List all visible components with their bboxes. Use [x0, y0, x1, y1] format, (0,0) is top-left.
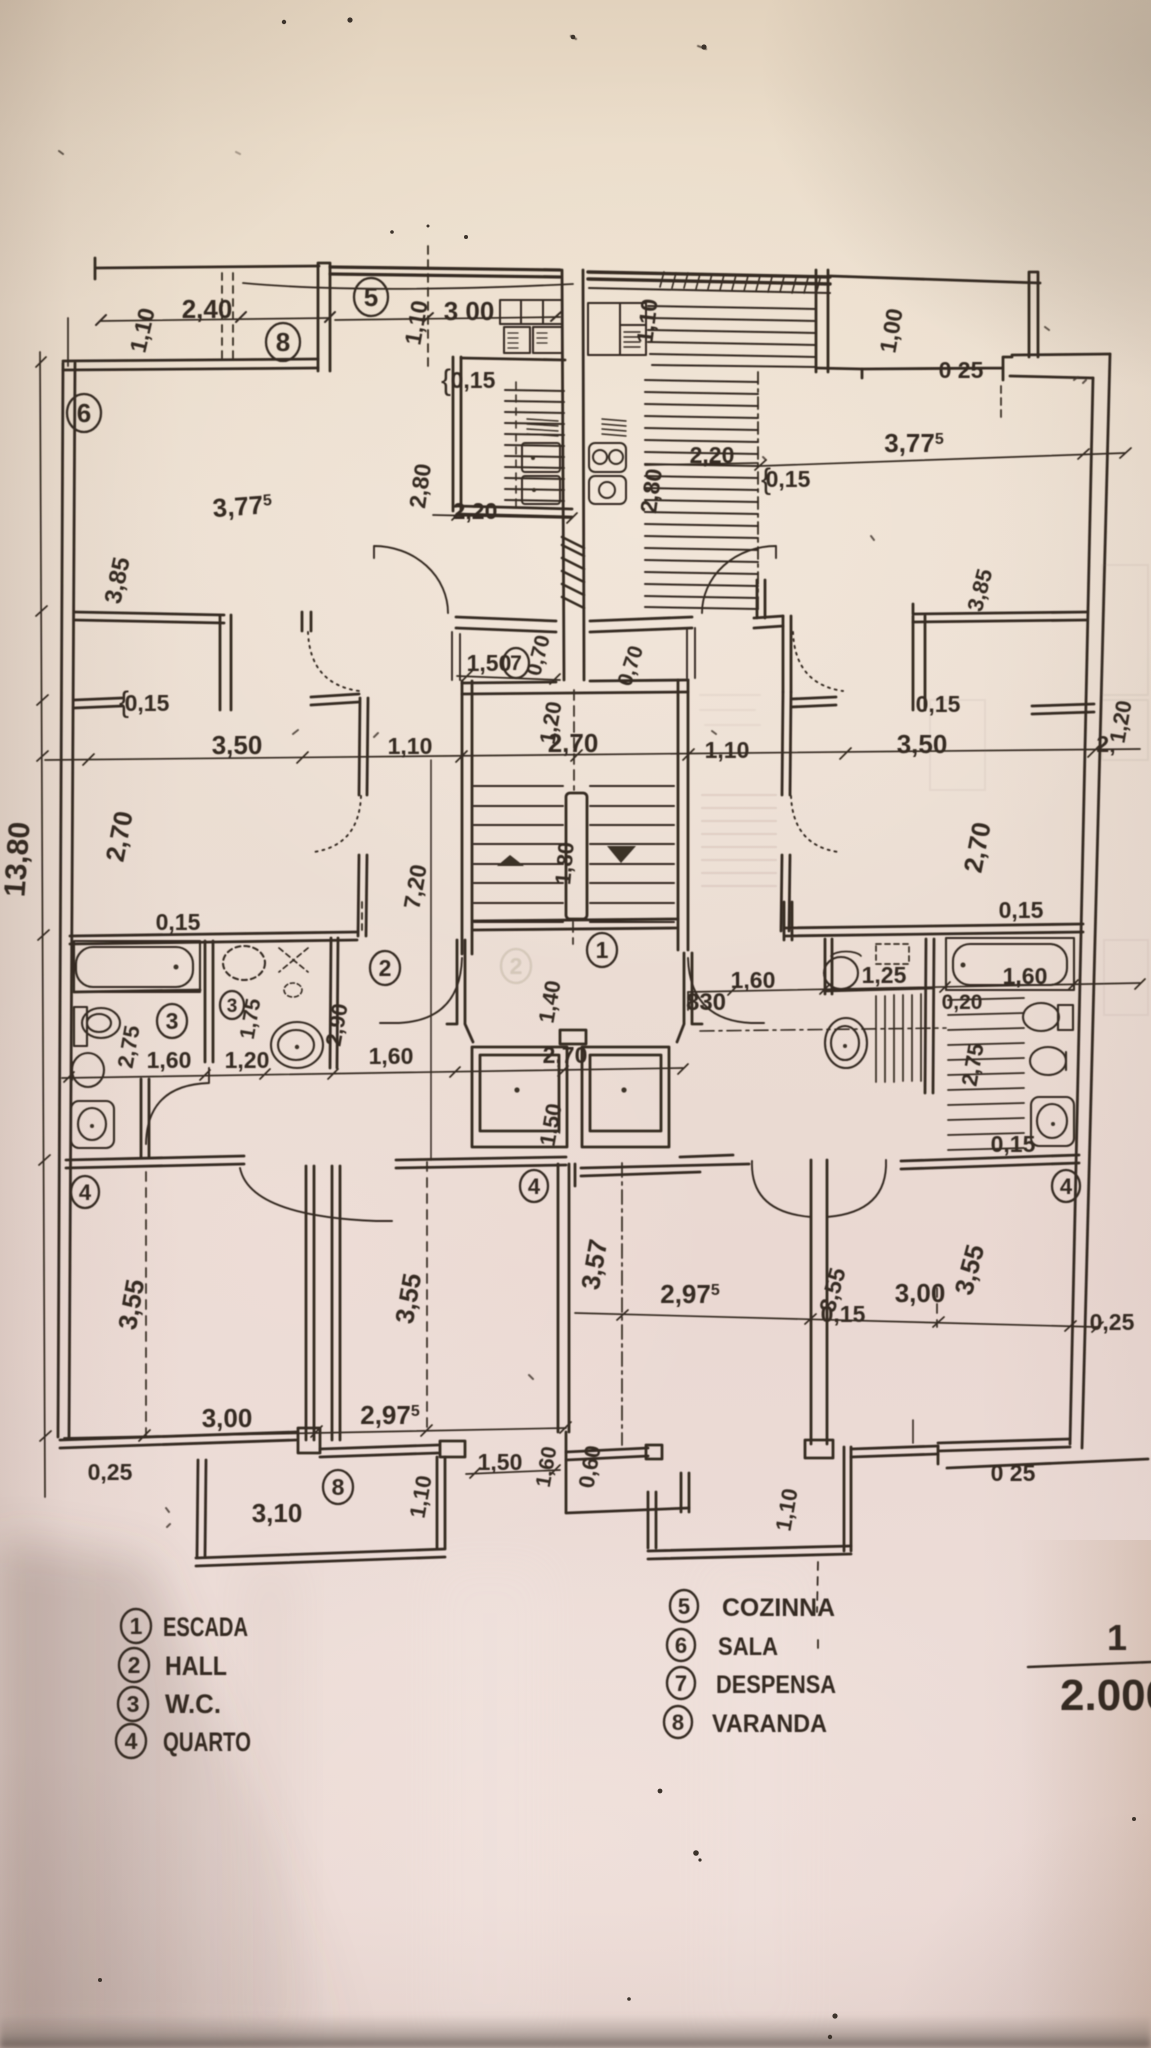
- svg-text:0 25: 0 25: [939, 357, 984, 383]
- svg-text:1,10: 1,10: [705, 737, 750, 763]
- svg-text:2,70: 2,70: [543, 1042, 588, 1068]
- svg-text:13,80: 13,80: [0, 821, 37, 898]
- svg-text:2.000: 2.000: [1060, 1671, 1151, 1720]
- svg-text:8: 8: [672, 1710, 684, 1735]
- svg-text:0,25: 0,25: [88, 1459, 133, 1485]
- svg-text:1,10: 1,10: [631, 297, 662, 345]
- svg-text:{: {: [119, 686, 129, 719]
- svg-text:1,20: 1,20: [225, 1047, 270, 1073]
- svg-text:2: 2: [379, 955, 392, 981]
- svg-text:830: 830: [686, 989, 726, 1016]
- svg-text:2: 2: [510, 953, 523, 979]
- svg-text:4: 4: [79, 1180, 92, 1205]
- svg-text:4: 4: [528, 1174, 541, 1199]
- svg-text:3,775: 3,775: [212, 489, 274, 523]
- svg-text:3: 3: [127, 1691, 140, 1717]
- svg-text:7: 7: [675, 1671, 687, 1696]
- svg-text:{: {: [441, 364, 451, 397]
- svg-text:2,40: 2,40: [182, 294, 233, 324]
- svg-text:2,20: 2,20: [690, 442, 735, 468]
- svg-text:8: 8: [276, 327, 290, 357]
- svg-text:DESPENSA: DESPENSA: [716, 1671, 836, 1699]
- svg-text:ESCADA: ESCADA: [163, 1612, 248, 1642]
- svg-text:0,25: 0,25: [1090, 1309, 1135, 1335]
- svg-text:7: 7: [510, 652, 522, 675]
- svg-text:3,00: 3,00: [202, 1403, 253, 1433]
- svg-text:{: {: [761, 463, 771, 496]
- svg-text:3,50: 3,50: [212, 730, 263, 760]
- svg-text:0,15: 0,15: [766, 466, 811, 492]
- svg-text:3,10: 3,10: [252, 1498, 303, 1528]
- svg-text:1: 1: [1107, 1617, 1127, 1658]
- svg-text:1,80: 1,80: [550, 841, 579, 886]
- svg-text:1,10: 1,10: [388, 733, 433, 759]
- svg-text:1,60: 1,60: [731, 967, 776, 993]
- svg-text:0 25: 0 25: [991, 1460, 1036, 1486]
- svg-text:HALL: HALL: [165, 1651, 227, 1681]
- svg-text:6: 6: [77, 398, 91, 428]
- svg-text:2,20: 2,20: [453, 498, 498, 524]
- svg-text:W.C.: W.C.: [165, 1689, 221, 1719]
- svg-text:COZINNA: COZINNA: [722, 1594, 835, 1622]
- svg-text:3: 3: [227, 996, 238, 1017]
- svg-text:3,00: 3,00: [895, 1278, 946, 1308]
- svg-text:VARANDA: VARANDA: [712, 1710, 827, 1738]
- svg-text:0,15: 0,15: [916, 691, 961, 717]
- svg-text:3 00: 3 00: [444, 296, 495, 326]
- svg-text:1,60: 1,60: [369, 1043, 414, 1069]
- svg-text:0,15: 0,15: [125, 690, 170, 716]
- svg-text:2,: 2,: [1096, 731, 1115, 757]
- svg-text:3: 3: [166, 1008, 179, 1034]
- svg-text:3,50: 3,50: [897, 729, 948, 759]
- svg-text:4: 4: [1060, 1174, 1073, 1199]
- svg-text:1,60: 1,60: [1003, 963, 1048, 989]
- svg-text:SALA: SALA: [718, 1633, 778, 1661]
- svg-text:6: 6: [675, 1633, 687, 1658]
- svg-text:0,15: 0,15: [999, 897, 1044, 923]
- svg-text:2: 2: [128, 1652, 141, 1678]
- svg-text:QUARTO: QUARTO: [163, 1727, 251, 1757]
- svg-text:5: 5: [364, 282, 378, 312]
- svg-text:0,20: 0,20: [942, 991, 983, 1014]
- svg-text:0,15: 0,15: [156, 909, 201, 935]
- svg-text:0,15: 0,15: [451, 367, 496, 393]
- svg-text:1,60: 1,60: [147, 1047, 192, 1073]
- svg-text:8: 8: [332, 1474, 345, 1500]
- svg-text:1,50: 1,50: [478, 1449, 523, 1475]
- svg-text:1: 1: [130, 1613, 143, 1639]
- svg-text:0,15: 0,15: [991, 1131, 1036, 1157]
- svg-text:4: 4: [125, 1728, 138, 1754]
- svg-text:1,25: 1,25: [862, 962, 907, 988]
- svg-text:5: 5: [678, 1594, 690, 1619]
- svg-text:1: 1: [596, 937, 609, 963]
- svg-text:0,15: 0,15: [821, 1301, 866, 1327]
